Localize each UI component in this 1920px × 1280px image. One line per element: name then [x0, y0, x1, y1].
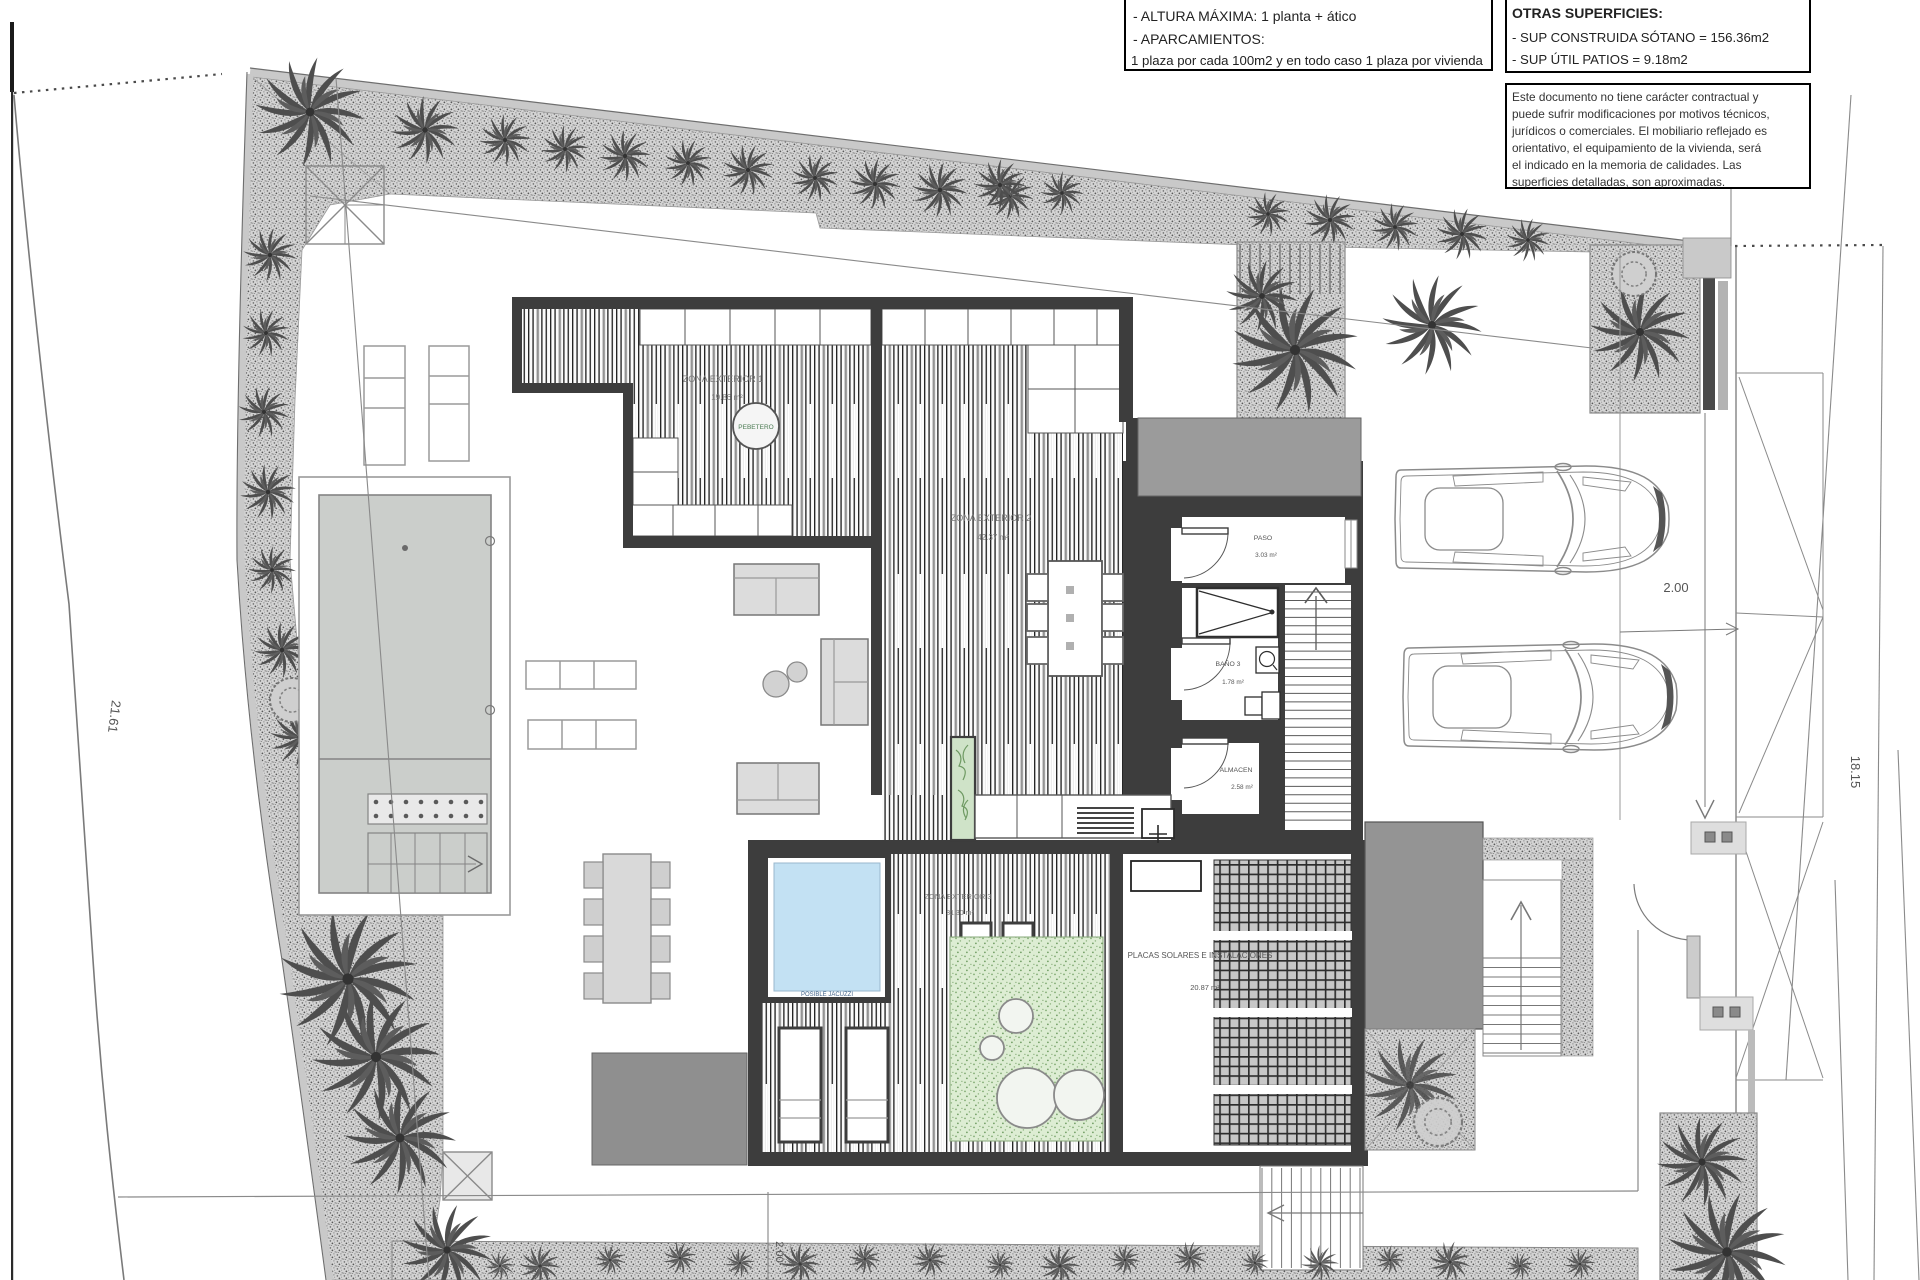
svg-text:2.00: 2.00	[1663, 580, 1688, 595]
svg-text:1.78 m²: 1.78 m²	[1222, 679, 1244, 686]
svg-text:Este documento no tiene caráct: Este documento no tiene carácter contrac…	[1512, 90, 1759, 104]
svg-text:orientativo, el equipamiento d: orientativo, el equipamiento de la vivie…	[1512, 141, 1762, 155]
svg-text:ZONA EXTERIOR 1: ZONA EXTERIOR 1	[683, 374, 764, 384]
svg-text:PEBETERO: PEBETERO	[738, 424, 773, 431]
svg-text:OTRAS SUPERFICIES:: OTRAS SUPERFICIES:	[1512, 5, 1663, 21]
svg-text:ALMACEN: ALMACEN	[1220, 767, 1253, 774]
svg-text:3.03 m²: 3.03 m²	[1255, 552, 1277, 559]
svg-text:el indicado en la memoria de c: el indicado en la memoria de calidades. …	[1512, 158, 1742, 172]
svg-text:POSIBLE JACUZZI: POSIBLE JACUZZI	[801, 992, 853, 998]
svg-text:BAÑO 3: BAÑO 3	[1216, 659, 1241, 668]
svg-text:19.86 m²: 19.86 m²	[711, 393, 743, 402]
svg-text:PASO: PASO	[1254, 535, 1272, 542]
svg-text:18.15: 18.15	[1848, 756, 1863, 789]
svg-text:- SUP CONSTRUIDA SÓTANO = 15: - SUP CONSTRUIDA SÓTANO = 156.36m2	[1512, 30, 1769, 45]
svg-text:ZONA EXTERIOR 3: ZONA EXTERIOR 3	[924, 892, 991, 901]
svg-text:PLACAS SOLARES E INSTALACIONES: PLACAS SOLARES E INSTALACIONES	[1128, 951, 1273, 960]
svg-text:jurídicos o comerciales. El mo: jurídicos o comerciales. El mobiliario r…	[1511, 124, 1767, 138]
svg-text:ZONA EXTERIOR 2: ZONA EXTERIOR 2	[951, 513, 1032, 523]
svg-text:2.58 m²: 2.58 m²	[1231, 784, 1253, 791]
svg-text:- ALTURA MÁXIMA: 1 planta + át: - ALTURA MÁXIMA: 1 planta + ático	[1133, 8, 1357, 24]
svg-text:20.87 m²: 20.87 m²	[1190, 983, 1220, 992]
svg-text:superficies detalladas, son ap: superficies detalladas, son aproximadas.	[1512, 175, 1725, 189]
svg-text:2.00: 2.00	[773, 1241, 785, 1262]
svg-text:31.30 m²: 31.30 m²	[946, 910, 974, 917]
svg-text:1 plaza por cada 100m2 y en to: 1 plaza por cada 100m2 y en todo caso 1 …	[1131, 53, 1484, 68]
svg-text:- APARCAMIENTOS:: - APARCAMIENTOS:	[1133, 31, 1265, 47]
svg-text:puede sufrir modificaciones po: puede sufrir modificaciones por motivos …	[1512, 107, 1770, 121]
svg-text:- SUP ÚTIL PATIOS = 9.18m2: - SUP ÚTIL PATIOS = 9.18m2	[1512, 52, 1688, 67]
svg-text:42.37 m²: 42.37 m²	[977, 533, 1009, 542]
